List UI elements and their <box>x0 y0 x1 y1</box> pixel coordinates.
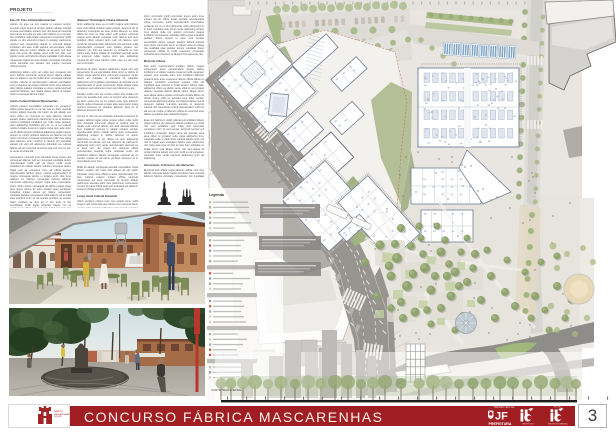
svg-text:INSTITUTO BRASIL: INSTITUTO BRASIL <box>548 423 569 426</box>
svg-text:INSTITUTO: INSTITUTO <box>522 424 534 426</box>
svg-text:PREFEITURA DE: PREFEITURA DE <box>494 405 515 409</box>
svg-text:Legenda: Legenda <box>209 193 225 197</box>
svg-text:CORTE TRANSVERSAL: CORTE TRANSVERSAL <box>211 388 242 392</box>
svg-text:JF: JF <box>495 411 508 423</box>
svg-text:PREFEITURA: PREFEITURA <box>489 422 512 426</box>
